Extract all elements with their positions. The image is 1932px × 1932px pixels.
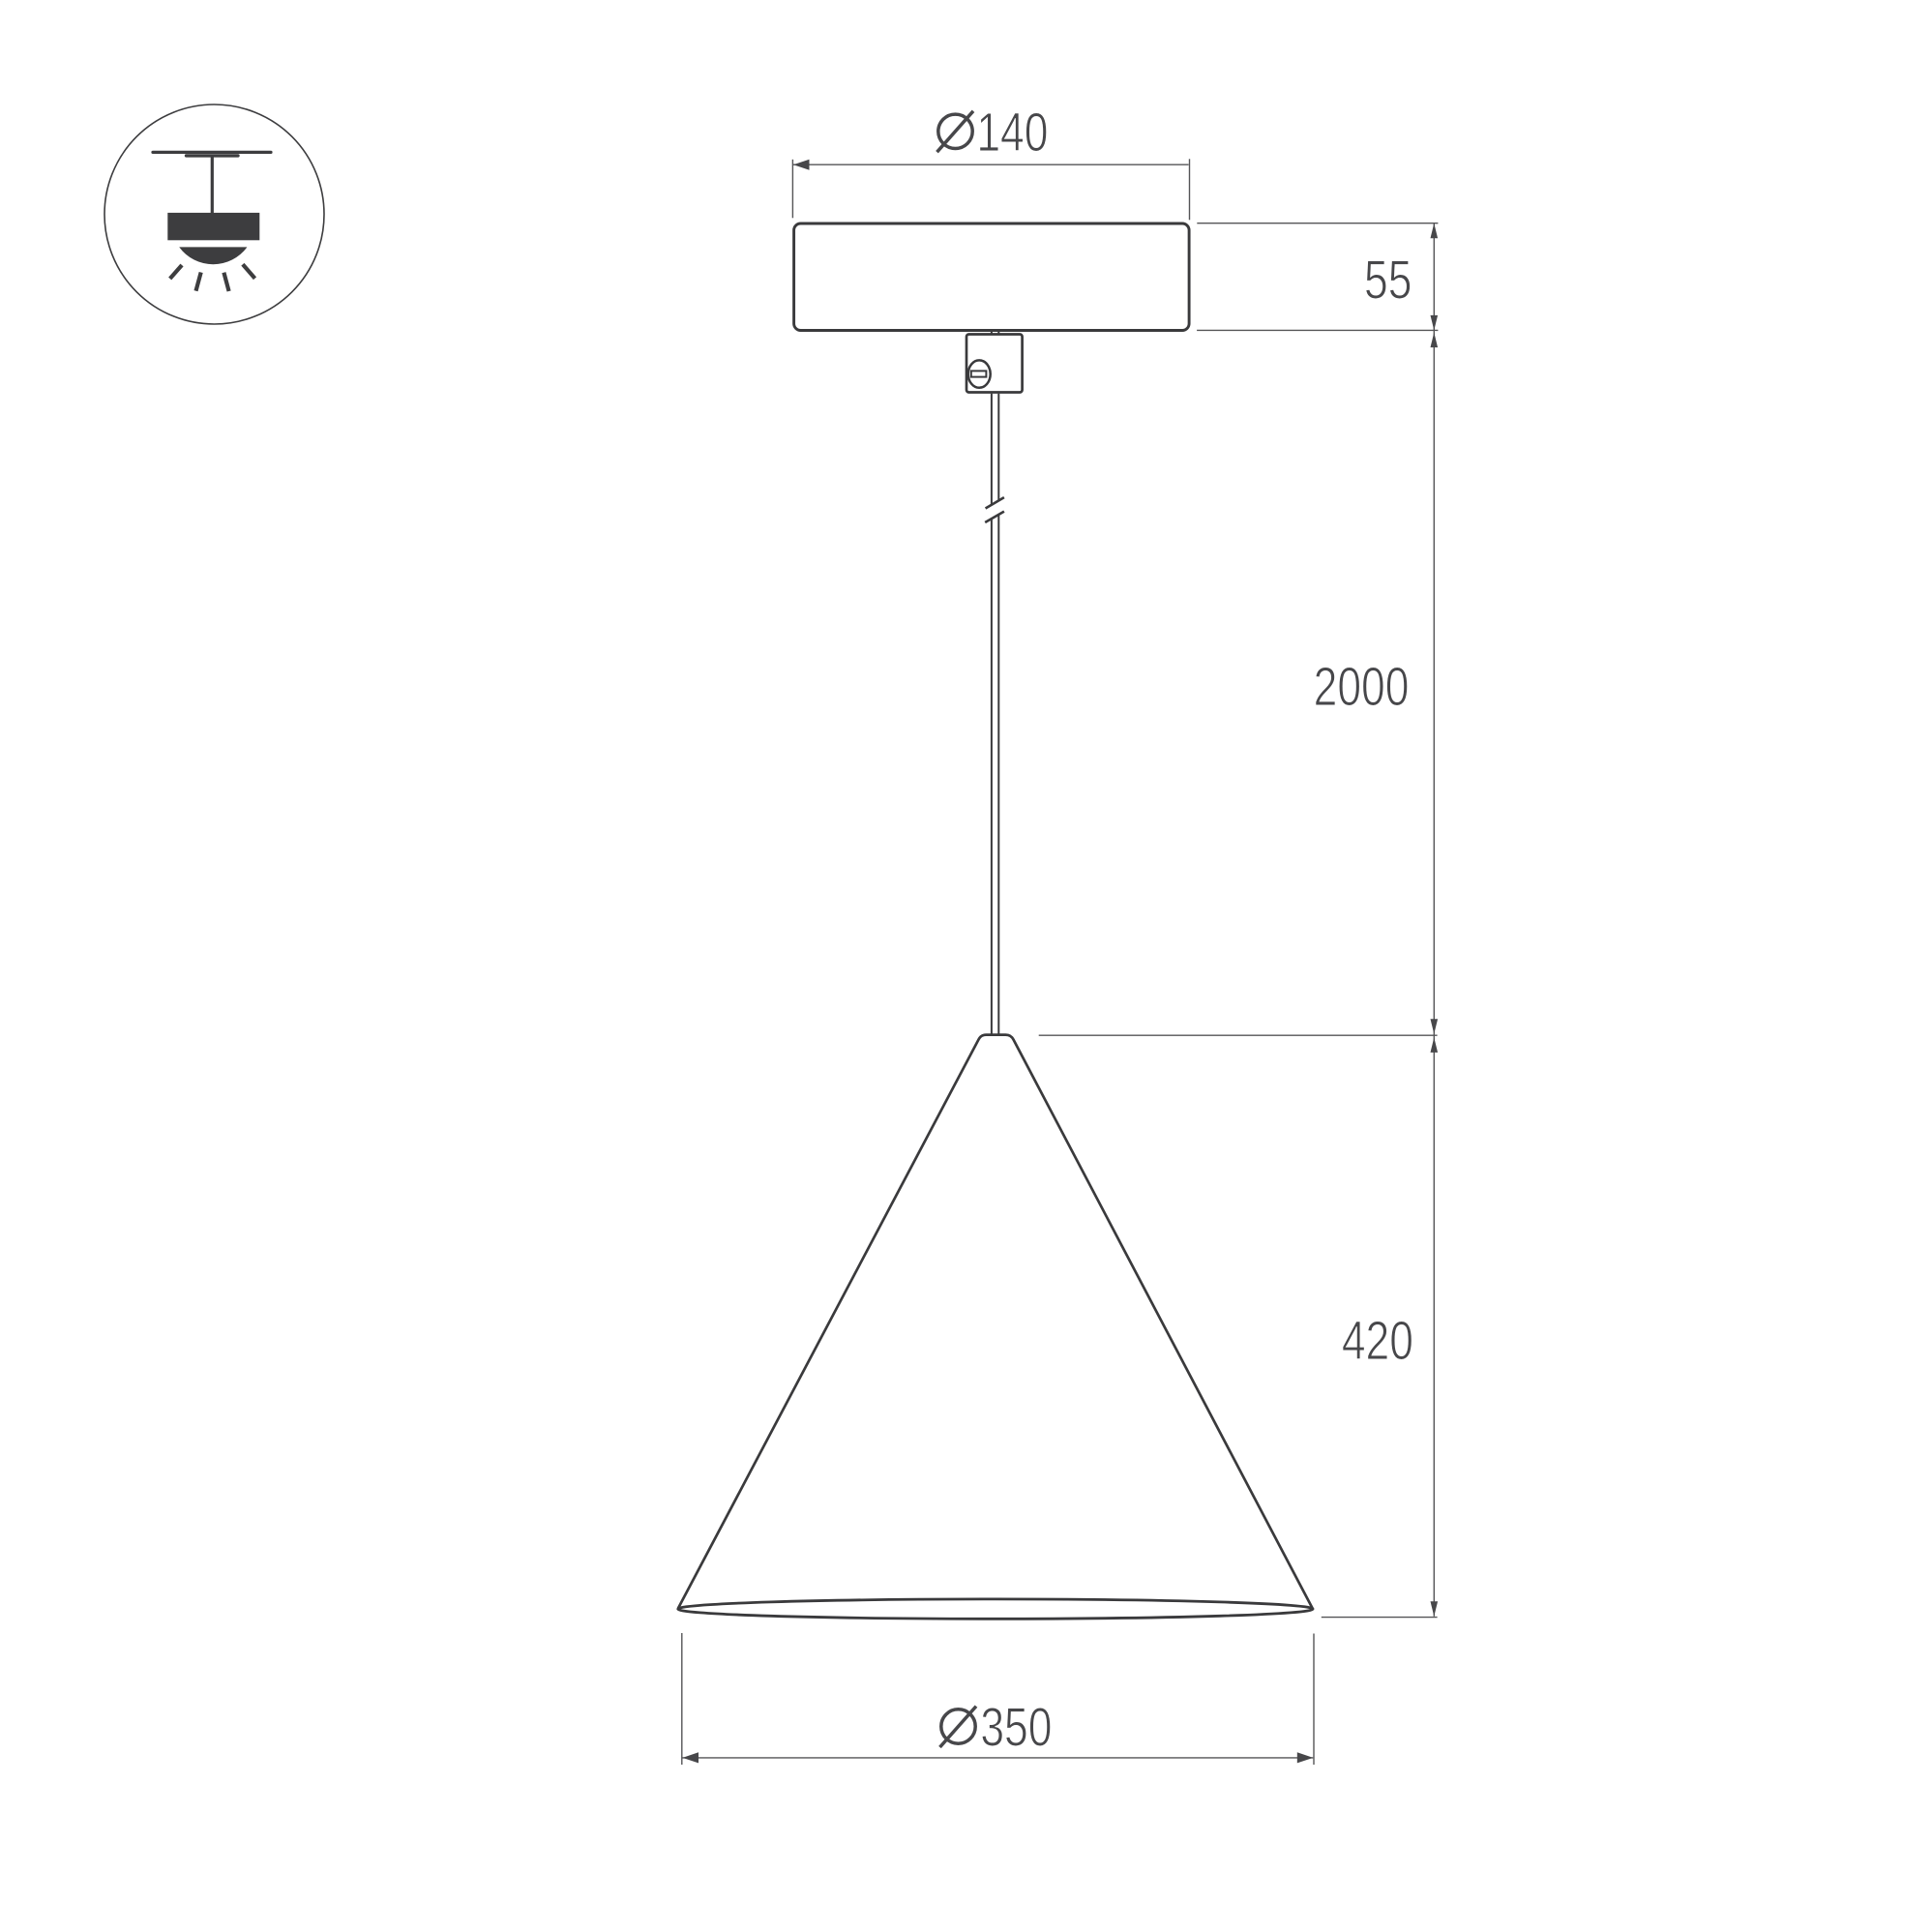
svg-text:140: 140 xyxy=(976,102,1048,163)
svg-text:2000: 2000 xyxy=(1314,656,1410,718)
svg-text:420: 420 xyxy=(1342,1310,1413,1372)
svg-text:55: 55 xyxy=(1364,249,1412,311)
svg-text:350: 350 xyxy=(980,1696,1052,1758)
